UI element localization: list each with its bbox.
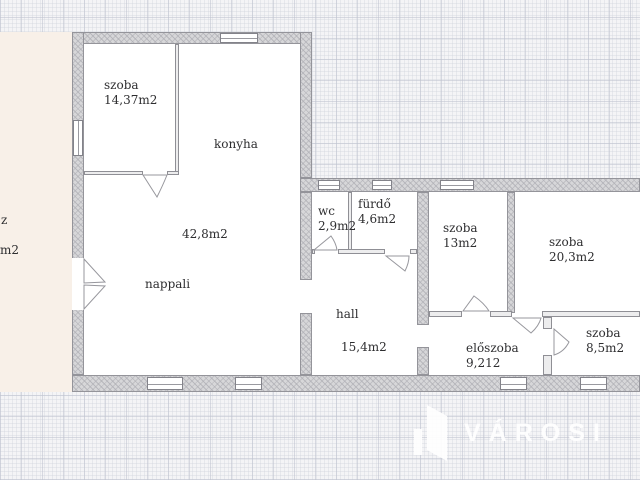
wall-mid-horizontal-c bbox=[542, 311, 640, 317]
wall-nappali-right-lower bbox=[300, 313, 312, 375]
window-szoba1-left bbox=[73, 120, 83, 156]
room-area: 2,9m2 bbox=[318, 219, 356, 234]
room-name: konyha bbox=[214, 137, 258, 152]
window-wc-top bbox=[318, 180, 340, 190]
label-hall-area: 15,4m2 bbox=[341, 340, 387, 355]
wall-eloszoba-szoba4-lower bbox=[543, 355, 552, 375]
wall-mid-horizontal-b bbox=[490, 311, 512, 317]
window-furdo-top bbox=[372, 180, 392, 190]
room-area: 4,6m2 bbox=[358, 212, 396, 227]
wall-top-left-block bbox=[72, 32, 312, 44]
wall-mid-horizontal-a bbox=[429, 311, 462, 317]
wall-szoba1-bottom-left bbox=[84, 171, 143, 175]
label-konyha: konyha bbox=[214, 137, 258, 152]
window-szoba4-bottom bbox=[580, 377, 607, 390]
wall-szoba1-bottom-right bbox=[167, 171, 179, 175]
room-area: 9,212 bbox=[466, 356, 519, 371]
label-szoba1: szoba 14,37m2 bbox=[104, 78, 157, 108]
room-name: szoba bbox=[443, 221, 478, 236]
label-nappali-area: 42,8m2 bbox=[182, 227, 228, 242]
label-terrace-fragment-2: m2 bbox=[0, 243, 19, 258]
label-wc: wc 2,9m2 bbox=[318, 204, 356, 234]
label-szoba4: szoba 8,5m2 bbox=[586, 326, 624, 356]
wall-wc-bottom-b bbox=[338, 249, 385, 254]
room-area: 15,4m2 bbox=[341, 340, 387, 355]
varosi-door-icon bbox=[414, 405, 448, 461]
window-nappali-bottom-1 bbox=[147, 377, 183, 390]
label-nappali-name: nappali bbox=[145, 277, 190, 292]
room-area: 20,3m2 bbox=[549, 250, 595, 265]
room-area: 13m2 bbox=[443, 236, 478, 251]
wall-hall-divider-upper bbox=[417, 192, 429, 325]
room-area: 14,37m2 bbox=[104, 93, 157, 108]
room-name: szoba bbox=[549, 235, 595, 250]
label-szoba3: szoba 20,3m2 bbox=[549, 235, 595, 265]
room-area: 42,8m2 bbox=[182, 227, 228, 242]
wall-left bbox=[72, 32, 84, 375]
wall-hall-divider-lower bbox=[417, 347, 429, 375]
room-name: wc bbox=[318, 204, 356, 219]
label-hall-name: hall bbox=[336, 307, 359, 322]
label-furdo: fürdő 4,6m2 bbox=[358, 197, 396, 227]
opening-terrace-door bbox=[72, 258, 84, 310]
wall-wc-bottom-a bbox=[312, 249, 315, 254]
floor-plan: szoba 14,37m2 konyha 42,8m2 nappali wc 2… bbox=[0, 0, 640, 480]
wall-eloszoba-szoba4-upper bbox=[543, 317, 552, 329]
watermark: VÁROSI bbox=[414, 400, 608, 466]
watermark-brand: VÁROSI bbox=[464, 419, 608, 448]
room-name: szoba bbox=[104, 78, 157, 93]
label-szoba2: szoba 13m2 bbox=[443, 221, 478, 251]
window-nappali-bottom-2 bbox=[235, 377, 262, 390]
window-eloszoba-bottom bbox=[500, 377, 527, 390]
room-name: előszoba bbox=[466, 341, 519, 356]
window-szoba2-top bbox=[440, 180, 474, 190]
label-eloszoba: előszoba 9,212 bbox=[466, 341, 519, 371]
wall-nappali-right-mid bbox=[300, 192, 312, 280]
wall-szoba-divider bbox=[507, 192, 515, 313]
label-terrace-fragment-1: z bbox=[1, 213, 7, 228]
opening-nappali-hall bbox=[300, 280, 312, 313]
room-area: 8,5m2 bbox=[586, 341, 624, 356]
room-name: szoba bbox=[586, 326, 624, 341]
room-name: nappali bbox=[145, 277, 190, 292]
wall-szoba1-konyha bbox=[175, 44, 179, 173]
wall-furdo-bottom-c bbox=[410, 249, 417, 254]
window-konyha-top bbox=[220, 33, 258, 43]
terrace-area bbox=[0, 32, 72, 392]
wall-konyha-right-upper bbox=[300, 32, 312, 178]
room-name: fürdő bbox=[358, 197, 396, 212]
room-name: hall bbox=[336, 307, 359, 322]
